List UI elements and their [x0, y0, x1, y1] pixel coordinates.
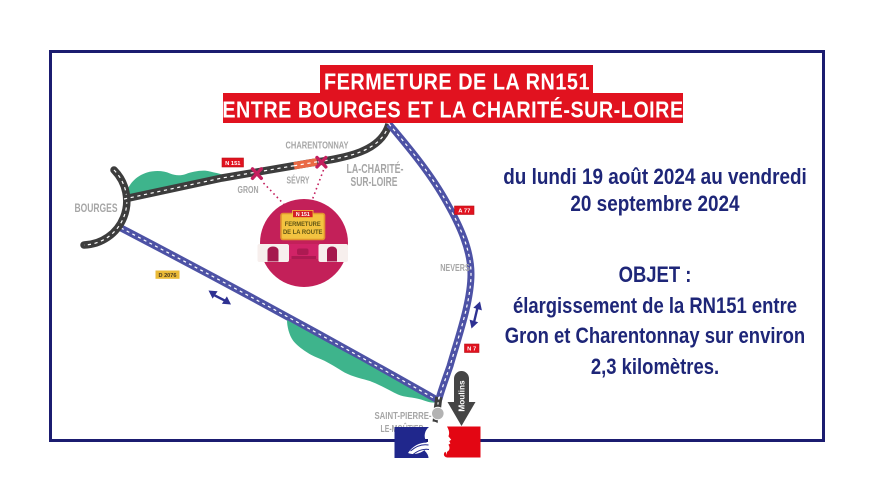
svg-text:N 151: N 151: [225, 161, 241, 167]
svg-text:Moulins: Moulins: [456, 380, 466, 412]
svg-text:A 77: A 77: [458, 209, 470, 215]
svg-text:NEVERS: NEVERS: [440, 263, 470, 274]
svg-text:D 2076: D 2076: [158, 273, 176, 279]
svg-text:SAINT-PIERRE-: SAINT-PIERRE-: [375, 410, 432, 422]
svg-text:N 151: N 151: [296, 212, 310, 218]
svg-text:SÉVRY: SÉVRY: [287, 174, 310, 187]
svg-text:CHARENTONNAY: CHARENTONNAY: [286, 141, 349, 152]
svg-text:DE LA ROUTE: DE LA ROUTE: [283, 229, 323, 236]
svg-text:GRON: GRON: [238, 184, 259, 196]
svg-text:LA-CHARITÉ-: LA-CHARITÉ-: [347, 161, 404, 176]
svg-text:SUR-LOIRE: SUR-LOIRE: [351, 175, 398, 189]
svg-text:FERMETURE: FERMETURE: [285, 221, 321, 228]
svg-text:N 7: N 7: [467, 347, 476, 353]
svg-text:BOURGES: BOURGES: [75, 201, 118, 215]
